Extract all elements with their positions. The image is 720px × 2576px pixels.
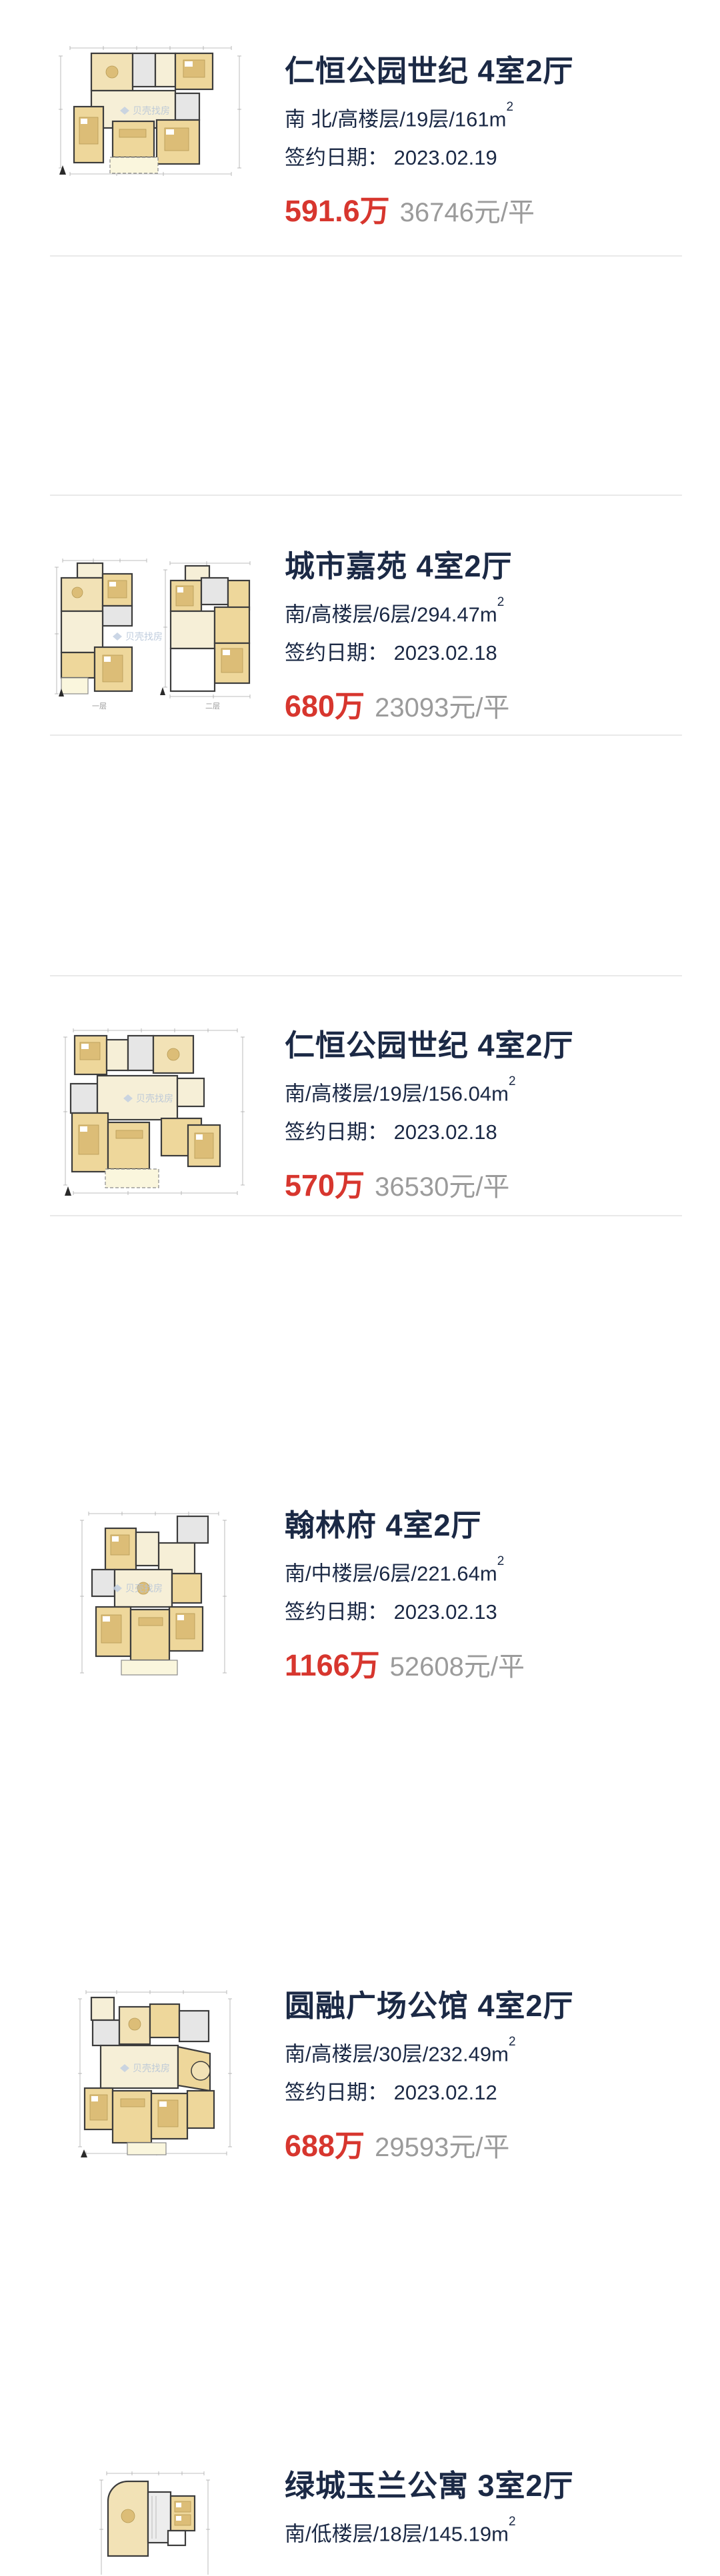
signing-date: 签约日期： 2023.02.19 bbox=[285, 147, 497, 168]
svg-text:贝壳找房: 贝壳找房 bbox=[125, 1583, 163, 1594]
floorplan-image: 贝壳找房 bbox=[77, 1987, 233, 2160]
price-row: 591.6万 36746元/平 bbox=[285, 196, 535, 226]
north-arrow-icon bbox=[59, 165, 66, 175]
listing-specs: 南/高楼层/30层/232.49m2 bbox=[285, 2043, 516, 2064]
listing-card[interactable]: 贝壳找房 圆融广场公馆 4室2厅 南/高楼层/30层/232.49m2 签约日期… bbox=[0, 975, 720, 1215]
svg-text:贝壳找房: 贝壳找房 bbox=[133, 2063, 170, 2073]
listing-title: 圆融广场公馆 4室2厅 bbox=[285, 1991, 574, 2021]
listing-title: 翰林府 4室2厅 bbox=[285, 1510, 482, 1541]
signing-date: 签约日期： 2023.02.13 bbox=[285, 1602, 497, 1622]
price-row: 1166万 52608元/平 bbox=[285, 1650, 525, 1680]
floorplan-image bbox=[99, 2469, 212, 2576]
listing-specs: 南 北/高楼层/19层/161m2 bbox=[285, 109, 513, 129]
listing-card[interactable]: 贝壳找房 翰林府 4室2厅 南/中楼层/6层/221.64m2 签约日期： 20… bbox=[0, 734, 720, 975]
listing-card[interactable]: 贝壳找房 仁恒公园世纪 4室2厅 南/高楼层/19层/156.04m2 签约日期… bbox=[0, 495, 720, 734]
floorplan-image: 贝壳找房 bbox=[57, 43, 243, 176]
unit-price: 36746元/平 bbox=[400, 199, 535, 226]
svg-text:贝壳找房: 贝壳找房 bbox=[133, 105, 170, 116]
listing-card[interactable]: 贝壳找房 仁恒公园世纪 4室2厅 南 北/高楼层/19层/161m2 签约日期：… bbox=[0, 0, 720, 255]
listing-specs: 南/低楼层/18层/145.19m2 bbox=[285, 2523, 516, 2544]
total-price: 1166万 bbox=[285, 1650, 380, 1680]
listing-card[interactable]: 绿城玉兰公寓 3室2厅 南/低楼层/18层/145.19m2 bbox=[0, 1215, 720, 1314]
unit-price: 52608元/平 bbox=[390, 1654, 525, 1680]
total-price: 688万 bbox=[285, 2131, 365, 2161]
listing-title: 绿城玉兰公寓 3室2厅 bbox=[285, 2471, 574, 2501]
total-price: 591.6万 bbox=[285, 196, 390, 226]
floorplan-image: 贝壳找房 bbox=[79, 1510, 229, 1680]
price-row: 688万 29593元/平 bbox=[285, 2131, 509, 2161]
signing-date: 签约日期： 2023.02.12 bbox=[285, 2082, 497, 2103]
listing-card[interactable]: 一层 二层 贝壳找房 bbox=[0, 255, 720, 495]
listing-specs: 南/中楼层/6层/221.64m2 bbox=[285, 1563, 504, 1584]
listing-title: 仁恒公园世纪 4室2厅 bbox=[285, 56, 574, 87]
unit-price: 29593元/平 bbox=[375, 2134, 509, 2161]
